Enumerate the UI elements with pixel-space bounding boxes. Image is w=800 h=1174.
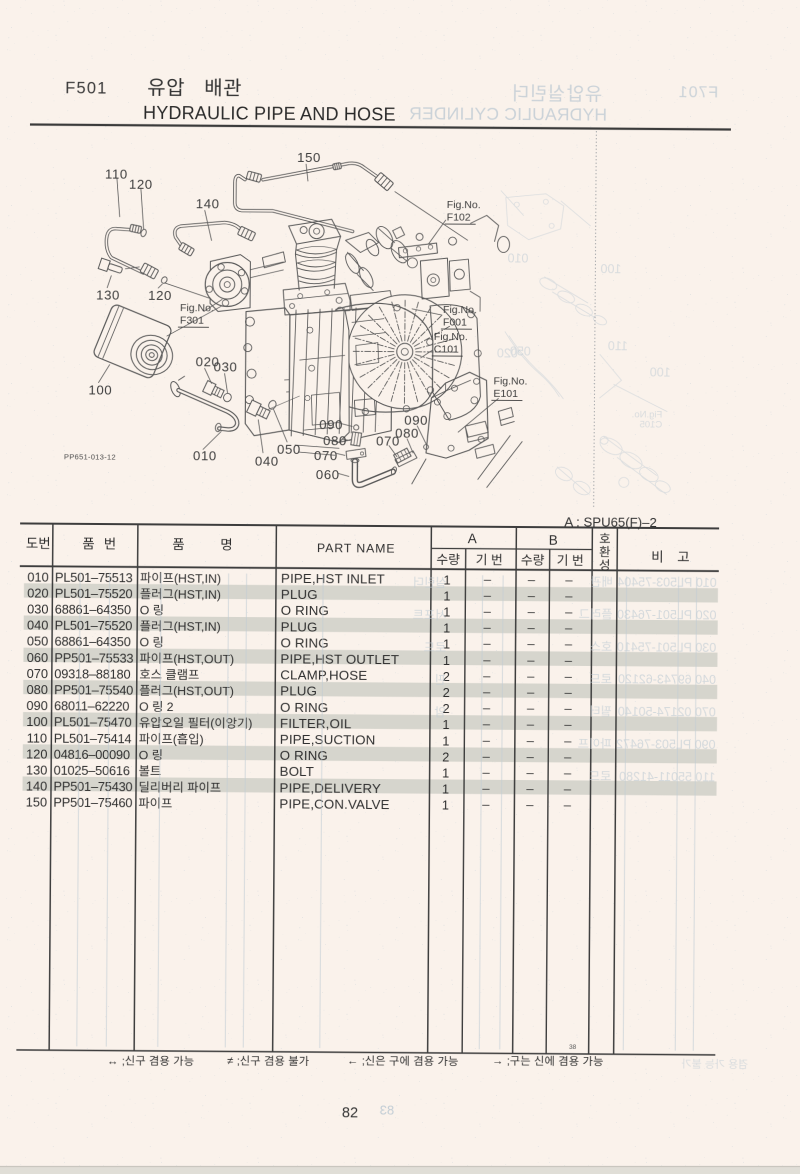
svg-text:090: 090: [26, 698, 47, 713]
svg-text:–: –: [527, 749, 535, 764]
svg-text:(HST,IN): (HST,IN): [174, 587, 221, 601]
svg-text:–: –: [482, 797, 490, 812]
svg-text:O RING: O RING: [280, 748, 328, 763]
svg-text:–: –: [565, 604, 573, 619]
svg-text:HYDRAULIC CYLINDER: HYDRAULIC CYLINDER: [409, 103, 607, 124]
svg-text:→ ;: → ;: [492, 1056, 510, 1068]
svg-text:020: 020: [27, 585, 48, 600]
svg-text:O: O: [140, 635, 153, 649]
svg-text:04816–00090: 04816–00090: [54, 747, 130, 763]
svg-text:PL501–75520: PL501–75520: [55, 586, 133, 602]
svg-text:PL501–75520: PL501–75520: [55, 618, 133, 634]
svg-text:PIPE,HST INLET: PIPE,HST INLET: [281, 571, 385, 587]
svg-text:040: 040: [27, 618, 48, 633]
svg-text:090: 090: [404, 413, 428, 428]
svg-text:130: 130: [96, 288, 120, 303]
svg-text:82: 82: [342, 1105, 358, 1121]
svg-text:PP501–75430: PP501–75430: [53, 779, 132, 795]
svg-text:130: 130: [26, 762, 47, 777]
svg-text:–: –: [527, 685, 535, 700]
svg-text:09318–88180: 09318–88180: [54, 666, 130, 682]
svg-text:140: 140: [26, 779, 47, 794]
svg-text:–: –: [564, 798, 572, 813]
svg-text:–: –: [527, 717, 535, 732]
svg-text:1: 1: [442, 717, 449, 732]
svg-text:Fig.No.: Fig.No.: [443, 304, 477, 316]
svg-text:PIPE,DELIVERY: PIPE,DELIVERY: [279, 780, 381, 796]
svg-text:–: –: [483, 716, 491, 731]
svg-text:–: –: [483, 749, 491, 764]
svg-text:050: 050: [510, 345, 531, 359]
svg-text:010: 010: [193, 448, 217, 463]
svg-text:040 69743-62120: 040 69743-62120: [618, 672, 716, 687]
svg-text:–: –: [565, 572, 573, 587]
svg-text:1: 1: [443, 572, 450, 587]
svg-text:–: –: [564, 717, 572, 732]
svg-text:PIPE,CON.VALVE: PIPE,CON.VALVE: [279, 796, 389, 812]
svg-text:070 02174-50140: 070 02174-50140: [618, 705, 716, 720]
svg-text:040: 040: [255, 454, 279, 469]
svg-text:–: –: [527, 652, 535, 667]
svg-text:1: 1: [443, 637, 450, 652]
svg-text:E101: E101: [493, 388, 518, 400]
svg-text:–: –: [565, 637, 573, 652]
svg-text:F501: F501: [65, 79, 108, 97]
svg-text:O: O: [140, 603, 153, 617]
svg-text:100: 100: [650, 366, 671, 380]
svg-text:83: 83: [380, 1103, 395, 1118]
svg-text:68011–62220: 68011–62220: [54, 698, 129, 714]
svg-text:060: 060: [316, 467, 340, 482]
svg-text:–: –: [482, 781, 490, 796]
svg-text:–: –: [527, 701, 535, 716]
svg-text:–: –: [526, 765, 534, 780]
svg-text:↔ ;: ↔ ;: [107, 1055, 125, 1067]
svg-text:PP501–75533: PP501–75533: [54, 650, 133, 666]
svg-text:1: 1: [443, 621, 450, 636]
svg-text:HYDRAULIC PIPE AND HOSE: HYDRAULIC PIPE AND HOSE: [143, 103, 396, 125]
svg-text:PART NAME: PART NAME: [317, 541, 396, 556]
svg-text:–: –: [483, 668, 491, 683]
svg-text:010: 010: [27, 569, 48, 584]
svg-text:(HST,IN): (HST,IN): [174, 620, 221, 634]
svg-text:2: 2: [442, 749, 449, 764]
svg-text:060: 060: [27, 650, 48, 665]
svg-text:–: –: [526, 781, 534, 796]
svg-text:68861–64350: 68861–64350: [55, 634, 131, 650]
svg-text:FILTER,OIL: FILTER,OIL: [280, 716, 352, 732]
svg-text:2: 2: [163, 700, 174, 714]
svg-text:–: –: [483, 684, 491, 699]
svg-text:120: 120: [148, 288, 172, 303]
svg-text:–: –: [528, 604, 536, 619]
svg-text:–: –: [527, 733, 535, 748]
svg-text:080: 080: [26, 682, 47, 697]
svg-text:010 PL503-75404: 010 PL503-75404: [617, 575, 717, 590]
svg-text:Fig.No.: Fig.No.: [434, 331, 468, 343]
svg-text:090 PL503-76472: 090 PL503-76472: [616, 737, 716, 752]
svg-text:CLAMP,HOSE: CLAMP,HOSE: [280, 667, 367, 683]
svg-text:1: 1: [443, 588, 450, 603]
svg-text:–: –: [484, 588, 492, 603]
svg-text:–: –: [528, 572, 536, 587]
svg-text:080: 080: [395, 426, 419, 441]
svg-text:–: –: [483, 652, 491, 667]
svg-text:–: –: [564, 765, 572, 780]
svg-text:120: 120: [129, 177, 153, 192]
svg-text:–: –: [565, 588, 573, 603]
svg-text:PLUG: PLUG: [280, 684, 317, 699]
svg-text:PIPE,HST OUTLET: PIPE,HST OUTLET: [280, 651, 399, 667]
svg-text:–: –: [564, 733, 572, 748]
svg-text:120: 120: [26, 746, 47, 761]
svg-text:(HST,OUT): (HST,OUT): [173, 652, 234, 666]
svg-text:030: 030: [214, 359, 238, 374]
svg-text:1: 1: [443, 653, 450, 668]
svg-text:140: 140: [196, 196, 220, 211]
svg-text:PL501–75470: PL501–75470: [54, 714, 132, 730]
svg-text:–: –: [483, 733, 491, 748]
svg-text:110: 110: [608, 339, 628, 353]
svg-text:PP501–75540: PP501–75540: [54, 682, 133, 698]
svg-text:–: –: [483, 700, 491, 715]
svg-text:1: 1: [442, 798, 449, 813]
svg-text:–: –: [482, 765, 490, 780]
svg-text:100: 100: [26, 714, 47, 729]
svg-text:F701: F701: [678, 84, 719, 101]
svg-text:(HST,IN): (HST,IN): [174, 571, 221, 585]
svg-text:01025–50616: 01025–50616: [54, 763, 130, 779]
svg-text:030 PL501-75410: 030 PL501-75410: [617, 640, 717, 655]
svg-text:(HST,OUT): (HST,OUT): [173, 684, 234, 698]
svg-text:F001: F001: [443, 317, 467, 329]
svg-text:PLUG: PLUG: [281, 619, 318, 634]
svg-text:B: B: [549, 533, 558, 548]
svg-text:110: 110: [105, 167, 128, 182]
svg-text:C101: C101: [434, 343, 459, 355]
svg-text:O: O: [139, 700, 152, 714]
svg-text:1: 1: [442, 765, 449, 780]
svg-text:020 PL501-76430: 020 PL501-76430: [617, 608, 717, 623]
svg-text:–: –: [565, 669, 573, 684]
svg-text:–: –: [564, 749, 572, 764]
svg-text:C105: C105: [639, 419, 662, 430]
svg-text:F301: F301: [180, 315, 204, 327]
svg-text:–: –: [526, 797, 534, 812]
svg-text:Fig.No.: Fig.No.: [493, 375, 527, 387]
svg-text:O: O: [139, 748, 152, 762]
svg-text:PP501–75460: PP501–75460: [53, 795, 132, 811]
svg-text:A: A: [468, 531, 477, 546]
svg-text:1: 1: [442, 782, 449, 797]
svg-text:1: 1: [442, 733, 449, 748]
svg-text:090: 090: [319, 417, 343, 432]
svg-text:–: –: [565, 620, 573, 635]
svg-text:070: 070: [314, 448, 338, 463]
svg-text:–: –: [527, 668, 535, 683]
svg-text:–: –: [484, 572, 492, 587]
svg-text:150: 150: [26, 795, 47, 810]
svg-text:110 55011-41280: 110 55011-41280: [619, 770, 715, 785]
svg-text:O RING: O RING: [281, 603, 329, 618]
svg-text:Fig.No.: Fig.No.: [180, 302, 214, 314]
svg-text:–: –: [564, 701, 572, 716]
svg-text:–: –: [484, 604, 492, 619]
svg-text:PIPE,SUCTION: PIPE,SUCTION: [280, 732, 376, 748]
svg-text:150: 150: [297, 150, 321, 165]
svg-text:–: –: [565, 653, 573, 668]
svg-text:68861–64350: 68861–64350: [55, 602, 131, 618]
svg-text:PLUG: PLUG: [281, 587, 318, 602]
svg-text:Fig.No.: Fig.No.: [447, 199, 481, 211]
svg-text:070: 070: [27, 666, 48, 681]
svg-text:–: –: [528, 588, 536, 603]
svg-text:PL501–75513: PL501–75513: [55, 569, 133, 585]
svg-text:100: 100: [600, 262, 621, 276]
svg-text:38: 38: [569, 1044, 577, 1051]
svg-text:O RING: O RING: [281, 635, 329, 650]
svg-text:050: 050: [277, 442, 301, 457]
svg-text:100: 100: [88, 383, 112, 398]
svg-text:–: –: [564, 781, 572, 796]
svg-text:030: 030: [27, 601, 48, 616]
svg-text:–: –: [483, 636, 491, 651]
svg-text:2: 2: [442, 701, 449, 716]
svg-text:BOLT: BOLT: [280, 764, 314, 779]
svg-text:–: –: [484, 620, 492, 635]
svg-text:): ): [248, 717, 252, 731]
svg-text:–: –: [527, 636, 535, 651]
svg-text:F102: F102: [447, 212, 471, 224]
svg-text:–: –: [565, 685, 573, 700]
svg-text:PL501–75414: PL501–75414: [54, 730, 132, 746]
svg-text:110: 110: [27, 730, 48, 745]
svg-text:← ;: ← ;: [347, 1055, 365, 1067]
svg-text:050: 050: [27, 634, 48, 649]
svg-text:2: 2: [443, 685, 450, 700]
svg-text:010: 010: [507, 252, 528, 266]
svg-text:≠ ;: ≠ ;: [227, 1056, 240, 1068]
svg-text:O RING: O RING: [280, 700, 328, 715]
svg-text:PP651-013-12: PP651-013-12: [64, 452, 116, 461]
svg-text:–: –: [528, 620, 536, 635]
svg-text:): ): [200, 733, 204, 747]
svg-text:080: 080: [323, 433, 347, 448]
